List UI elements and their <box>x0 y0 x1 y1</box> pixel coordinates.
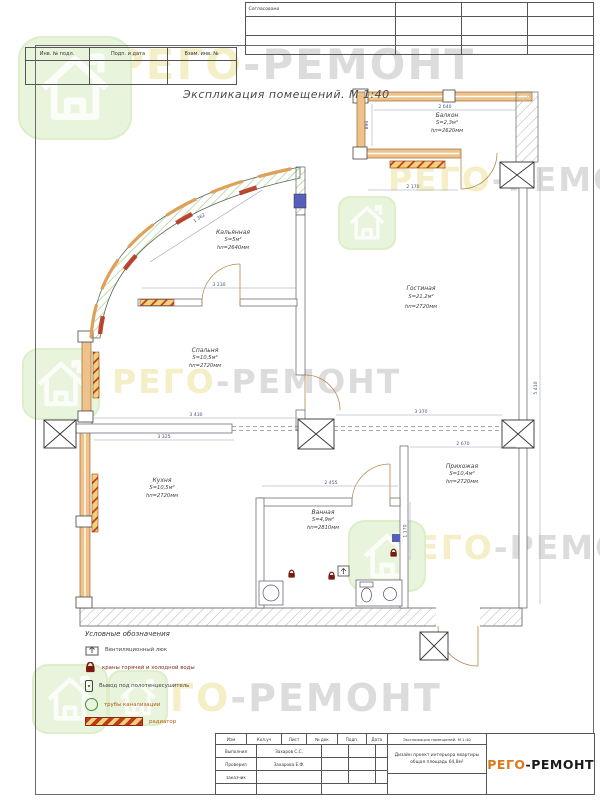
dimension-label: 2 455 <box>324 480 337 486</box>
plan-fixtures <box>259 534 402 606</box>
stamp-cell-empty <box>395 16 462 36</box>
faucet-icon <box>328 572 334 579</box>
tb-cell-empty <box>322 784 387 794</box>
tb-cell-empty <box>322 745 349 757</box>
curved-bay-wall <box>91 167 300 338</box>
svg-text:Спальня: Спальня <box>192 347 219 354</box>
legend-item-label: Вывод под полотенцесушитель <box>99 683 189 689</box>
svg-text:hп=2810мм: hп=2810мм <box>307 525 339 531</box>
drawing-sheet: РЕГО-РЕМОНТ РЕГО-РЕМОНТ РЕГО-РЕМОНТ РЕГО… <box>0 0 600 800</box>
project-line: общая площадь 64,8м² <box>410 760 463 765</box>
room-label-hookah-room: КальяннаяS=5м²hп=2640мм <box>216 229 250 251</box>
svg-text:hп=2640мм: hп=2640мм <box>217 245 249 251</box>
title-block-row: Выполнил Захаров С.С. <box>216 745 387 758</box>
room-labels: БалконS=2,3м²hп=2620мм КальяннаяS=5м²hп=… <box>146 112 478 531</box>
logo-text-black: -РЕМОНТ <box>526 757 594 772</box>
title-block-row: Проверил Захарова Е.Ф. <box>216 758 387 771</box>
legend-item-label: краны горячей и холодной воды <box>102 665 195 671</box>
tb-name: Захарова Е.Ф. <box>257 758 322 770</box>
title-block-row: заказчик <box>216 771 387 784</box>
svg-text:S=5м²: S=5м² <box>225 237 242 243</box>
frame-cell-empty <box>25 60 90 85</box>
svg-text:hп=2720мм: hп=2720мм <box>189 363 221 369</box>
towel-dryer-icon <box>85 680 93 692</box>
washing-machine <box>259 581 283 605</box>
tb-col: Подп. <box>338 734 367 744</box>
legend-item: трубы канализации <box>85 698 295 711</box>
svg-text:Балкон: Балкон <box>436 112 459 119</box>
radiator-symbol <box>92 474 98 532</box>
room-label-living-room: ГостинаяS=21,2м²hп=2720мм <box>405 285 437 310</box>
legend-item: Вывод под полотенцесушитель <box>85 680 295 692</box>
doc-title: Экспликация помещений. М 1:40 <box>388 734 487 745</box>
column-vent-shaft <box>298 419 334 449</box>
tb-cell-empty <box>376 758 387 770</box>
column-vent-shaft <box>420 632 448 660</box>
approval-stamp-table: Согласовано <box>245 2 593 54</box>
sink <box>384 588 397 601</box>
title-block-middle: Экспликация помещений. М 1:40 Дизайн про… <box>388 734 488 794</box>
faucet-icon <box>390 549 396 556</box>
svg-text:S=2,3м²: S=2,3м² <box>436 120 458 126</box>
towel-dryer-outlet <box>392 534 400 542</box>
title-block-header-row: Изм Кол.уч Лист № док Подп. Дата <box>216 734 387 745</box>
svg-text:S=21,2м²: S=21,2м² <box>408 294 433 300</box>
svg-text:Гостиная: Гостиная <box>407 285 436 292</box>
svg-text:Кухня: Кухня <box>153 477 172 484</box>
svg-text:S=10,5м²: S=10,5м² <box>149 485 174 491</box>
balcony-door-arc <box>461 153 497 189</box>
legend-item-label: Вентиляционный люк <box>105 647 167 653</box>
column-vent-shaft <box>44 420 76 448</box>
tb-role: заказчик <box>216 771 257 783</box>
toilet <box>362 588 372 602</box>
tb-cell-empty <box>376 771 387 783</box>
room-label-bathroom: ВаннаяS=4,9м²hп=2810мм <box>307 509 339 531</box>
dimension-label: 2 170 <box>406 184 419 190</box>
tb-cell-empty <box>322 758 349 770</box>
legend-item: Вентиляционный люк <box>85 644 295 656</box>
toilet-tank <box>360 582 373 587</box>
frame-cell-label: Подп. и дата <box>89 47 168 61</box>
svg-text:hп=2620мм: hп=2620мм <box>431 128 463 134</box>
room-label-bedroom: СпальняS=10,5м²hп=2720мм <box>189 347 221 369</box>
vent-hatch-icon <box>85 644 99 656</box>
svg-text:S=10,4м²: S=10,4м² <box>449 471 474 477</box>
dimension-label: 890 <box>364 121 370 130</box>
tb-role: Проверил <box>216 758 257 770</box>
tb-col: Кол.уч <box>247 734 282 744</box>
frame-cell-label: Взам. инв. № <box>167 47 237 61</box>
frame-left-table: Инв. № подл. Подп. и дата Взам. инв. № <box>25 47 236 84</box>
tb-col: Дата <box>367 734 387 744</box>
dimension-label: 3 230 <box>212 282 225 288</box>
title-block-grid: Изм Кол.уч Лист № док Подп. Дата Выполни… <box>216 734 388 794</box>
tb-cell-empty <box>257 784 322 794</box>
title-block: Изм Кол.уч Лист № док Подп. Дата Выполни… <box>215 733 595 795</box>
legend-item-label: трубы канализации <box>104 702 160 708</box>
legend-title: Условные обозначения <box>85 630 295 638</box>
project-description: Дизайн проект интерьера квартиры общая п… <box>388 745 487 774</box>
column-vent-shaft <box>500 162 534 188</box>
stamp-cell-empty <box>395 35 462 55</box>
frame-cell-label: Инв. № подл. <box>25 47 90 61</box>
svg-text:Прихожая: Прихожая <box>446 463 479 470</box>
column-vent-shaft <box>502 420 534 448</box>
frame-cell-empty <box>89 60 168 85</box>
dimension-label: 3 430 <box>189 412 202 418</box>
page-title: Экспликация помещений. М 1:40 <box>183 88 390 101</box>
legend-item-label: радиатор <box>149 719 176 725</box>
dimension-label: 5 410 <box>533 381 539 394</box>
tb-cell-empty <box>376 745 387 757</box>
svg-text:hп=2720мм: hп=2720мм <box>446 479 478 485</box>
stamp-cell-empty <box>461 16 528 36</box>
stamp-cell-empty <box>527 16 594 36</box>
tb-cell-empty <box>322 771 349 783</box>
svg-text:S=4,9м²: S=4,9м² <box>312 517 334 523</box>
stamp-cell-empty <box>395 2 462 17</box>
radiator-symbol <box>140 300 174 306</box>
tb-cell-empty <box>388 774 487 794</box>
title-block-row <box>216 784 387 794</box>
svg-text:hп=2720мм: hп=2720мм <box>146 493 178 499</box>
stamp-label: Согласовано <box>245 2 396 17</box>
frame-cell-empty <box>167 60 237 85</box>
tb-cell-empty <box>349 758 376 770</box>
room-label-balcony: БалконS=2,3м²hп=2620мм <box>431 112 463 134</box>
stamp-cell-empty <box>527 35 594 55</box>
radiator-symbol <box>390 161 445 168</box>
room-label-hallway: ПрихожаяS=10,4м²hп=2720мм <box>446 463 479 485</box>
tb-col: Лист <box>282 734 307 744</box>
vent-duct-marker <box>294 194 306 208</box>
radiator-symbol <box>93 352 99 398</box>
tb-cell-empty <box>216 784 257 794</box>
stamp-cell-empty <box>527 2 594 17</box>
faucet-icon <box>85 662 96 674</box>
tb-cell-empty <box>349 771 376 783</box>
tb-role: Выполнил <box>216 745 257 757</box>
tb-col: Изм <box>216 734 247 744</box>
dimension-label: 3 325 <box>157 434 170 440</box>
legend-item: краны горячей и холодной воды <box>85 662 295 674</box>
dimension-label: 2 640 <box>438 104 451 110</box>
room-label-kitchen: КухняS=10,5м²hп=2720мм <box>146 477 178 499</box>
stamp-cell-empty <box>245 35 396 55</box>
plan-walls <box>44 89 538 666</box>
faucet-icon <box>288 570 294 577</box>
rego-remont-logo: РЕГО-РЕМОНТ <box>487 734 594 794</box>
dimension-label: 2 670 <box>456 441 469 447</box>
radiator-icon <box>85 717 143 726</box>
legend-item: радиатор <box>85 717 295 726</box>
svg-text:Ванная: Ванная <box>312 509 335 516</box>
dimension-label: 1 170 <box>403 524 409 537</box>
tb-cell-empty <box>349 745 376 757</box>
svg-text:hп=2720мм: hп=2720мм <box>405 304 437 310</box>
tb-name: Захаров С.С. <box>257 745 322 757</box>
legend: Условные обозначения Вентиляционный люк … <box>85 630 295 732</box>
tb-name <box>257 771 322 783</box>
door-arc <box>305 375 340 410</box>
dimension-label: 3 370 <box>414 409 427 415</box>
bathroom-door-arc <box>352 464 390 502</box>
tb-col: № док <box>307 734 338 744</box>
svg-text:S=10,5м²: S=10,5м² <box>192 355 217 361</box>
stamp-cell-empty <box>461 35 528 55</box>
sewer-pipe-icon <box>85 698 98 711</box>
project-line: Дизайн проект интерьера квартиры <box>395 753 479 758</box>
logo-text-orange: РЕГО <box>487 757 525 772</box>
svg-text:Кальянная: Кальянная <box>216 229 250 236</box>
stamp-cell-empty <box>461 2 528 17</box>
stamp-cell-empty <box>245 16 396 36</box>
